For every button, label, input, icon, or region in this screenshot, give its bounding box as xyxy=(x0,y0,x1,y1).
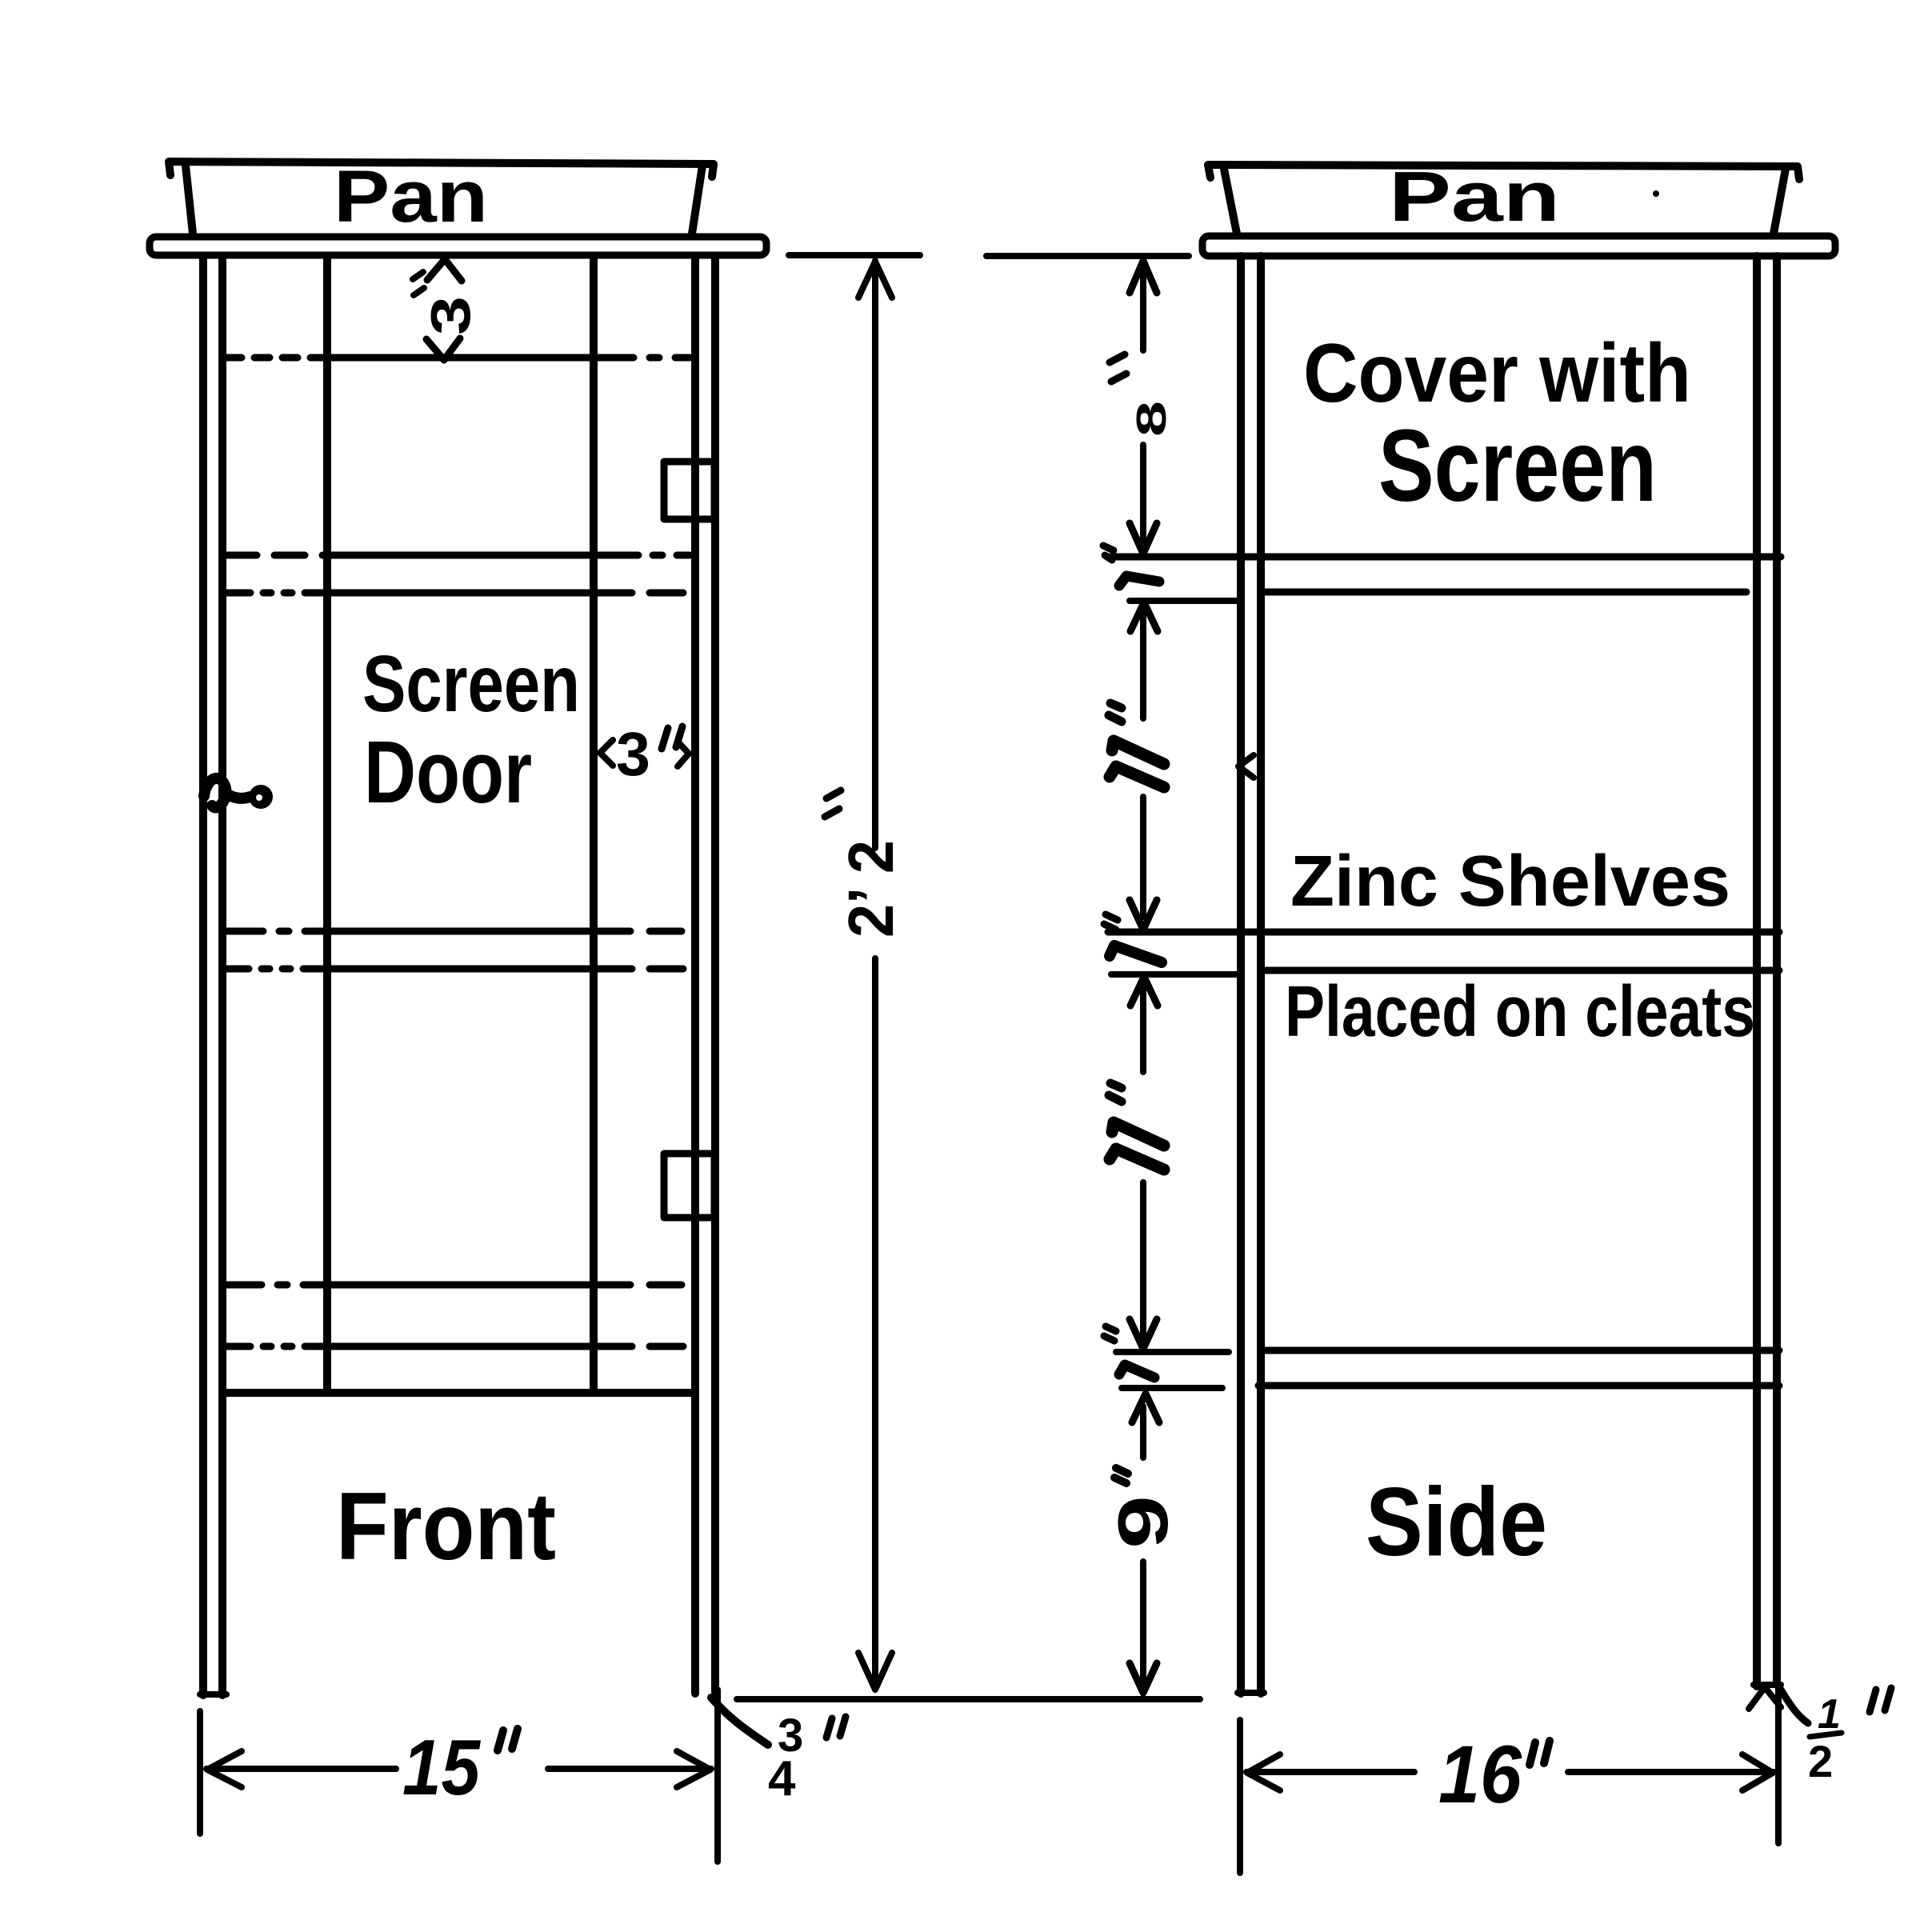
svg-text:Cover with: Cover with xyxy=(1303,327,1691,420)
svg-text:2: 2 xyxy=(1808,1736,1833,1786)
svg-text:4: 4 xyxy=(768,1751,796,1806)
svg-text:3: 3 xyxy=(616,720,650,789)
svg-text:Front: Front xyxy=(336,1473,556,1580)
svg-text:Door: Door xyxy=(364,723,532,822)
svg-text:16: 16 xyxy=(1438,1729,1522,1820)
svg-text:1: 1 xyxy=(1818,1691,1841,1738)
svg-text:Placed on cleats: Placed on cleats xyxy=(1285,972,1755,1052)
svg-text:Zinc Shelves: Zinc Shelves xyxy=(1290,842,1730,922)
svg-text:Screen: Screen xyxy=(1378,409,1657,523)
svg-text:15: 15 xyxy=(402,1723,481,1811)
svg-text:Pan: Pan xyxy=(1389,157,1560,236)
svg-text:3: 3 xyxy=(419,296,482,335)
svg-text:2’ 2: 2’ 2 xyxy=(835,840,906,938)
svg-text:Screen: Screen xyxy=(362,639,580,729)
svg-text:8: 8 xyxy=(1129,401,1175,437)
svg-text:Pan: Pan xyxy=(334,156,488,238)
svg-text:Side: Side xyxy=(1366,1467,1547,1576)
svg-text:9: 9 xyxy=(1103,1495,1182,1549)
